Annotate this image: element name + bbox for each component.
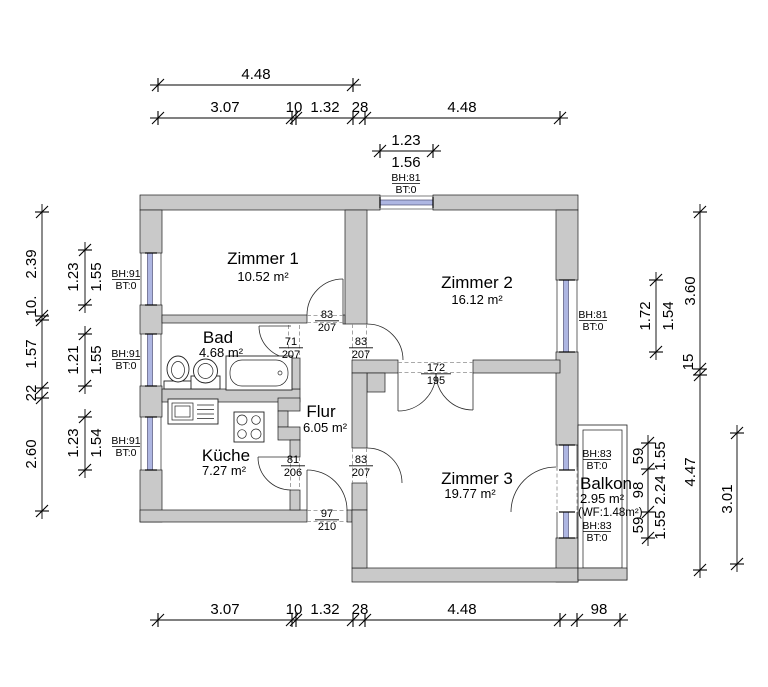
dim-right-1: 3.60 xyxy=(682,276,699,305)
window-balcony-bottom-bt-label: BT:0 xyxy=(586,532,607,544)
dim-left-4: 22 xyxy=(23,385,40,402)
dimension-lines xyxy=(35,78,744,627)
dim-left-5: 2.60 xyxy=(23,439,40,468)
door-entrance-height: 210 xyxy=(318,521,336,533)
dim-bottom-1: 3.07 xyxy=(210,601,239,618)
dim-top-4: 28 xyxy=(352,99,369,116)
window-balcony-top xyxy=(557,445,577,470)
window-left2-bt-label: BT:0 xyxy=(115,360,136,372)
dim-left-win1-a: 1.23 xyxy=(65,262,82,291)
door-balcony xyxy=(511,467,556,512)
dim-right-balcony-total: 3.01 xyxy=(719,484,736,513)
door-kueche-width: 81 xyxy=(287,454,299,466)
room-area-bad: 4.68 m² xyxy=(199,345,244,360)
door-zimmer2 xyxy=(367,324,403,360)
window-left3-bt-label: BT:0 xyxy=(115,447,136,459)
window-left1-bt-label: BT:0 xyxy=(115,280,136,292)
dim-balcony-2a: 98 xyxy=(630,482,647,499)
dim-left-win2-a: 1.21 xyxy=(65,345,82,374)
dim-balcony-2b: 2.24 xyxy=(652,475,669,504)
room-area-balkon: 2.95 m² xyxy=(580,491,625,506)
kitchen-sink-counter xyxy=(168,399,218,424)
room-area-zimmer2: 16.12 m² xyxy=(451,292,503,307)
window-right-bt-label: BT:0 xyxy=(582,321,603,333)
window-balcony-bottom-bh-label: BH:83 xyxy=(582,520,611,532)
room-label-flur: Flur xyxy=(306,402,336,421)
dim-right-2: 15 xyxy=(680,354,697,371)
window-balcony-top-bh-label: BH:83 xyxy=(582,448,611,460)
window-bad xyxy=(141,334,161,386)
window-balcony-top-bt-label: BT:0 xyxy=(586,460,607,472)
dim-left-win2-b: 1.55 xyxy=(88,345,105,374)
window-top-bt-label: BT:0 xyxy=(395,184,416,196)
door-bad-height: 207 xyxy=(282,349,300,361)
dim-top-total: 4.48 xyxy=(241,66,270,83)
opening-zimmer2-height: 195 xyxy=(427,375,445,387)
room-area-zimmer1: 10.52 m² xyxy=(237,269,289,284)
room-label-zimmer2: Zimmer 2 xyxy=(441,273,513,292)
floor-plan-drawing: 4.48 3.07 10 1.32 28 4.48 1.23 1.56 BH:8… xyxy=(0,0,768,687)
door-entrance xyxy=(307,470,347,510)
dim-top-1: 3.07 xyxy=(210,99,239,116)
dim-top-2: 10 xyxy=(286,99,303,116)
room-area-kueche: 7.27 m² xyxy=(202,463,247,478)
window-balcony-bottom xyxy=(557,512,577,538)
window-right-bh-label: BH:81 xyxy=(578,309,607,321)
door-zimmer3-height: 207 xyxy=(352,467,370,479)
dim-right-3: 4.47 xyxy=(682,457,699,486)
door-zimmer1-width: 83 xyxy=(321,309,333,321)
dim-top-3: 1.32 xyxy=(310,99,339,116)
dim-bottom-2: 10 xyxy=(286,601,303,618)
sink xyxy=(191,359,220,389)
window-zimmer1 xyxy=(141,253,161,305)
dim-left-win3-a: 1.23 xyxy=(65,428,82,457)
room-area-zimmer3: 19.77 m² xyxy=(444,486,496,501)
window-left2-bh-label: BH:91 xyxy=(111,348,140,360)
room-area-flur: 6.05 m² xyxy=(303,420,348,435)
dim-bottom-4: 28 xyxy=(352,601,369,618)
dim-top-5: 4.48 xyxy=(447,99,476,116)
door-zimmer1-height: 207 xyxy=(318,322,336,334)
dim-bottom-balcony: 98 xyxy=(591,601,608,618)
window-top-bh-label: BH:81 xyxy=(391,172,420,184)
toilet xyxy=(164,356,192,389)
room-label-zimmer1: Zimmer 1 xyxy=(227,249,299,268)
dim-right-win-b: 1.54 xyxy=(660,301,677,330)
dim-top-window-b: 1.56 xyxy=(391,154,420,171)
window-zimmer2-top xyxy=(380,196,433,209)
dim-bottom-5: 4.48 xyxy=(447,601,476,618)
dim-balcony-3a: 59 xyxy=(630,517,647,534)
door-entrance-width: 97 xyxy=(321,508,333,520)
window-zimmer2-right xyxy=(557,280,577,352)
dim-left-3: 1.57 xyxy=(23,339,40,368)
door-bad-width: 71 xyxy=(285,336,297,348)
door-zimmer2-height: 207 xyxy=(352,349,370,361)
dim-left-win1-b: 1.55 xyxy=(88,262,105,291)
opening-zimmer2-width: 172 xyxy=(427,362,445,374)
dim-balcony-3b: 1.55 xyxy=(652,510,669,539)
floor-plan-page: 4.48 3.07 10 1.32 28 4.48 1.23 1.56 BH:8… xyxy=(0,0,768,687)
dim-right-win-a: 1.72 xyxy=(637,301,654,330)
window-left3-bh-label: BH:91 xyxy=(111,435,140,447)
door-zimmer3-width: 83 xyxy=(355,454,367,466)
bathtub xyxy=(226,356,292,390)
dim-top-window-a: 1.23 xyxy=(391,132,420,149)
window-left1-bh-label: BH:91 xyxy=(111,268,140,280)
dim-balcony-1b: 1.55 xyxy=(652,441,669,470)
dim-balcony-1a: 59 xyxy=(630,448,647,465)
room-note-balkon: (WF:1.48m²) xyxy=(578,507,643,519)
dim-left-win3-b: 1.54 xyxy=(88,428,105,457)
window-kueche xyxy=(141,417,161,470)
door-kueche-height: 206 xyxy=(284,467,302,479)
dim-left-2: 10. xyxy=(23,296,40,317)
dim-left-1: 2.39 xyxy=(23,249,40,278)
door-zimmer2-width: 83 xyxy=(355,336,367,348)
dim-bottom-3: 1.32 xyxy=(310,601,339,618)
stove xyxy=(234,412,264,442)
